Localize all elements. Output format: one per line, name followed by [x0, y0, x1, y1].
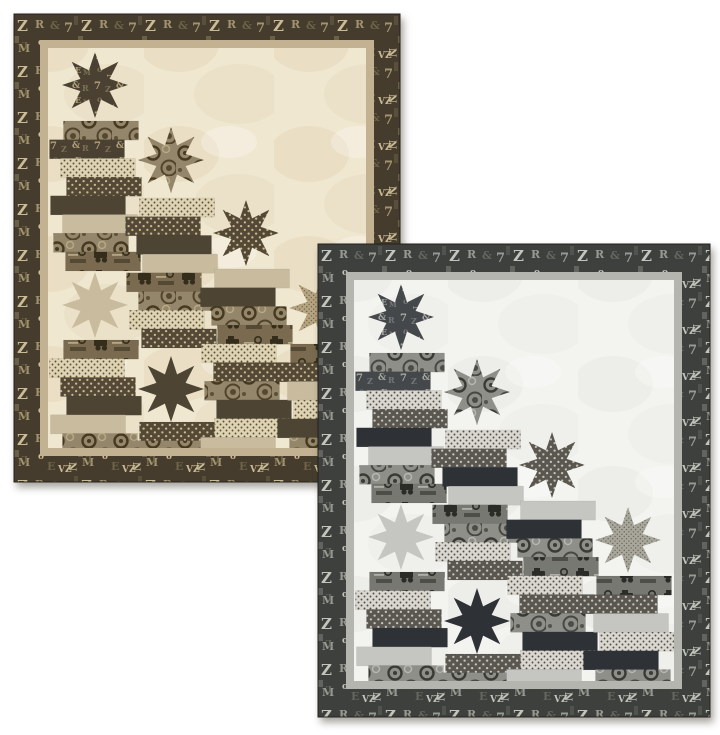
- brick-plain-dark: [357, 428, 432, 447]
- brick-dot-light: [356, 591, 431, 610]
- brick-trucks: [597, 576, 672, 595]
- brick-stack: [583, 576, 675, 689]
- brick-plain-dark: [507, 520, 582, 539]
- brick-dot-dark: [61, 377, 136, 396]
- star-block-plain-dark: [138, 356, 204, 422]
- brick-plain-light: [51, 415, 126, 434]
- brick-dot-light: [508, 576, 583, 595]
- brick-trucks: [127, 273, 202, 292]
- brick-plain-light: [143, 254, 218, 273]
- brick-plain-light: [215, 269, 290, 288]
- brick-gears: [370, 353, 445, 372]
- brick-plain-light: [594, 613, 669, 632]
- brick-dot-light: [130, 310, 205, 329]
- brick-plain-dark: [201, 288, 276, 307]
- brick-trucks: [218, 325, 293, 344]
- brick-letters: [50, 140, 125, 159]
- star-block-dot-tan: [595, 507, 661, 573]
- brick-dot-dark: [126, 217, 201, 236]
- brick-plain-dark: [373, 628, 448, 647]
- brick-gears: [511, 613, 586, 632]
- brick-gears: [518, 538, 593, 557]
- front-quilt-gray-and-black: [318, 244, 710, 717]
- brick-trucks: [372, 484, 447, 503]
- brick-plain-dark: [217, 400, 292, 419]
- star-block-letters: [368, 284, 434, 350]
- brick-dot-light: [50, 359, 125, 378]
- star-block-dot-dark: [213, 200, 279, 266]
- star-block-plain-light: [62, 272, 128, 338]
- brick-gears: [205, 381, 280, 400]
- brick-gears: [360, 465, 435, 484]
- brick-stack: [50, 340, 142, 453]
- brick-trucks: [370, 572, 445, 591]
- brick-plain-dark: [523, 632, 598, 651]
- brick-plain-dark: [137, 235, 212, 254]
- brick-dot-dark: [367, 609, 442, 628]
- brick-plain-light: [521, 501, 596, 520]
- brick-letters: [356, 372, 431, 391]
- brick-trucks: [524, 557, 599, 576]
- brick-plain-dark: [584, 651, 659, 670]
- brick-plain-light: [357, 647, 432, 666]
- brick-dot-dark: [373, 409, 448, 428]
- brick-dot-light: [140, 198, 215, 217]
- brick-plain-dark: [443, 467, 518, 486]
- brick-plain-light: [449, 486, 524, 505]
- brick-plain-dark: [67, 396, 142, 415]
- brick-gears: [54, 233, 129, 252]
- brick-gears: [212, 306, 287, 325]
- brick-trucks: [433, 505, 508, 524]
- brick-dot-light: [436, 542, 511, 561]
- star-block-dot-dark: [519, 432, 585, 498]
- brick-dot-dark: [432, 449, 507, 468]
- star-block-gears: [138, 127, 204, 193]
- brick-dot-light: [61, 158, 136, 177]
- brick-dot-light: [202, 344, 277, 363]
- brick-dot-dark: [583, 595, 658, 614]
- star-block-plain-dark: [444, 588, 510, 654]
- brick-trucks: [64, 340, 139, 359]
- brick-dot-light: [600, 632, 675, 651]
- brick-dot-light: [367, 390, 442, 409]
- brick-dot-dark: [67, 177, 142, 196]
- quilt-mockup-image: ZR&7NMoEVZL7Z&RoNEMZR&7NMoEVZL7Z&RoNEM: [0, 0, 720, 735]
- brick-gears: [64, 121, 139, 140]
- star-block-letters: [62, 52, 128, 118]
- brick-stack: [356, 572, 448, 685]
- brick-plain-dark: [51, 196, 126, 215]
- brick-dot-light: [446, 430, 521, 449]
- star-block-gears: [444, 359, 510, 425]
- brick-trucks: [66, 252, 141, 271]
- star-block-plain-light: [368, 504, 434, 570]
- quilt-mockup-canvas: ZR&7NMoEVZL7Z&RoNEMZR&7NMoEVZL7Z&RoNEM: [0, 0, 720, 735]
